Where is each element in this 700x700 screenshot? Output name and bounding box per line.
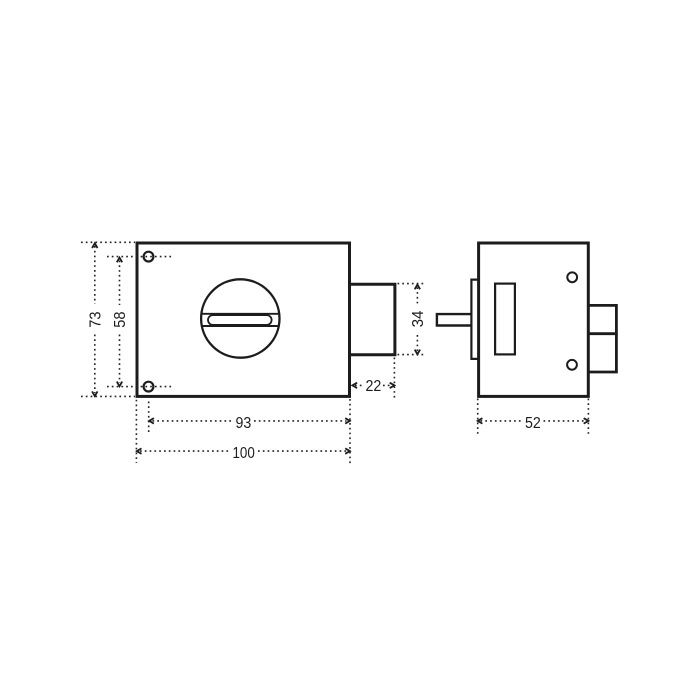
svg-text:58: 58 (112, 311, 129, 327)
svg-text:73: 73 (87, 311, 104, 327)
svg-text:52: 52 (525, 415, 541, 432)
svg-text:22: 22 (366, 378, 382, 395)
svg-text:93: 93 (236, 415, 252, 432)
svg-text:100: 100 (233, 445, 255, 462)
svg-text:34: 34 (410, 311, 427, 328)
